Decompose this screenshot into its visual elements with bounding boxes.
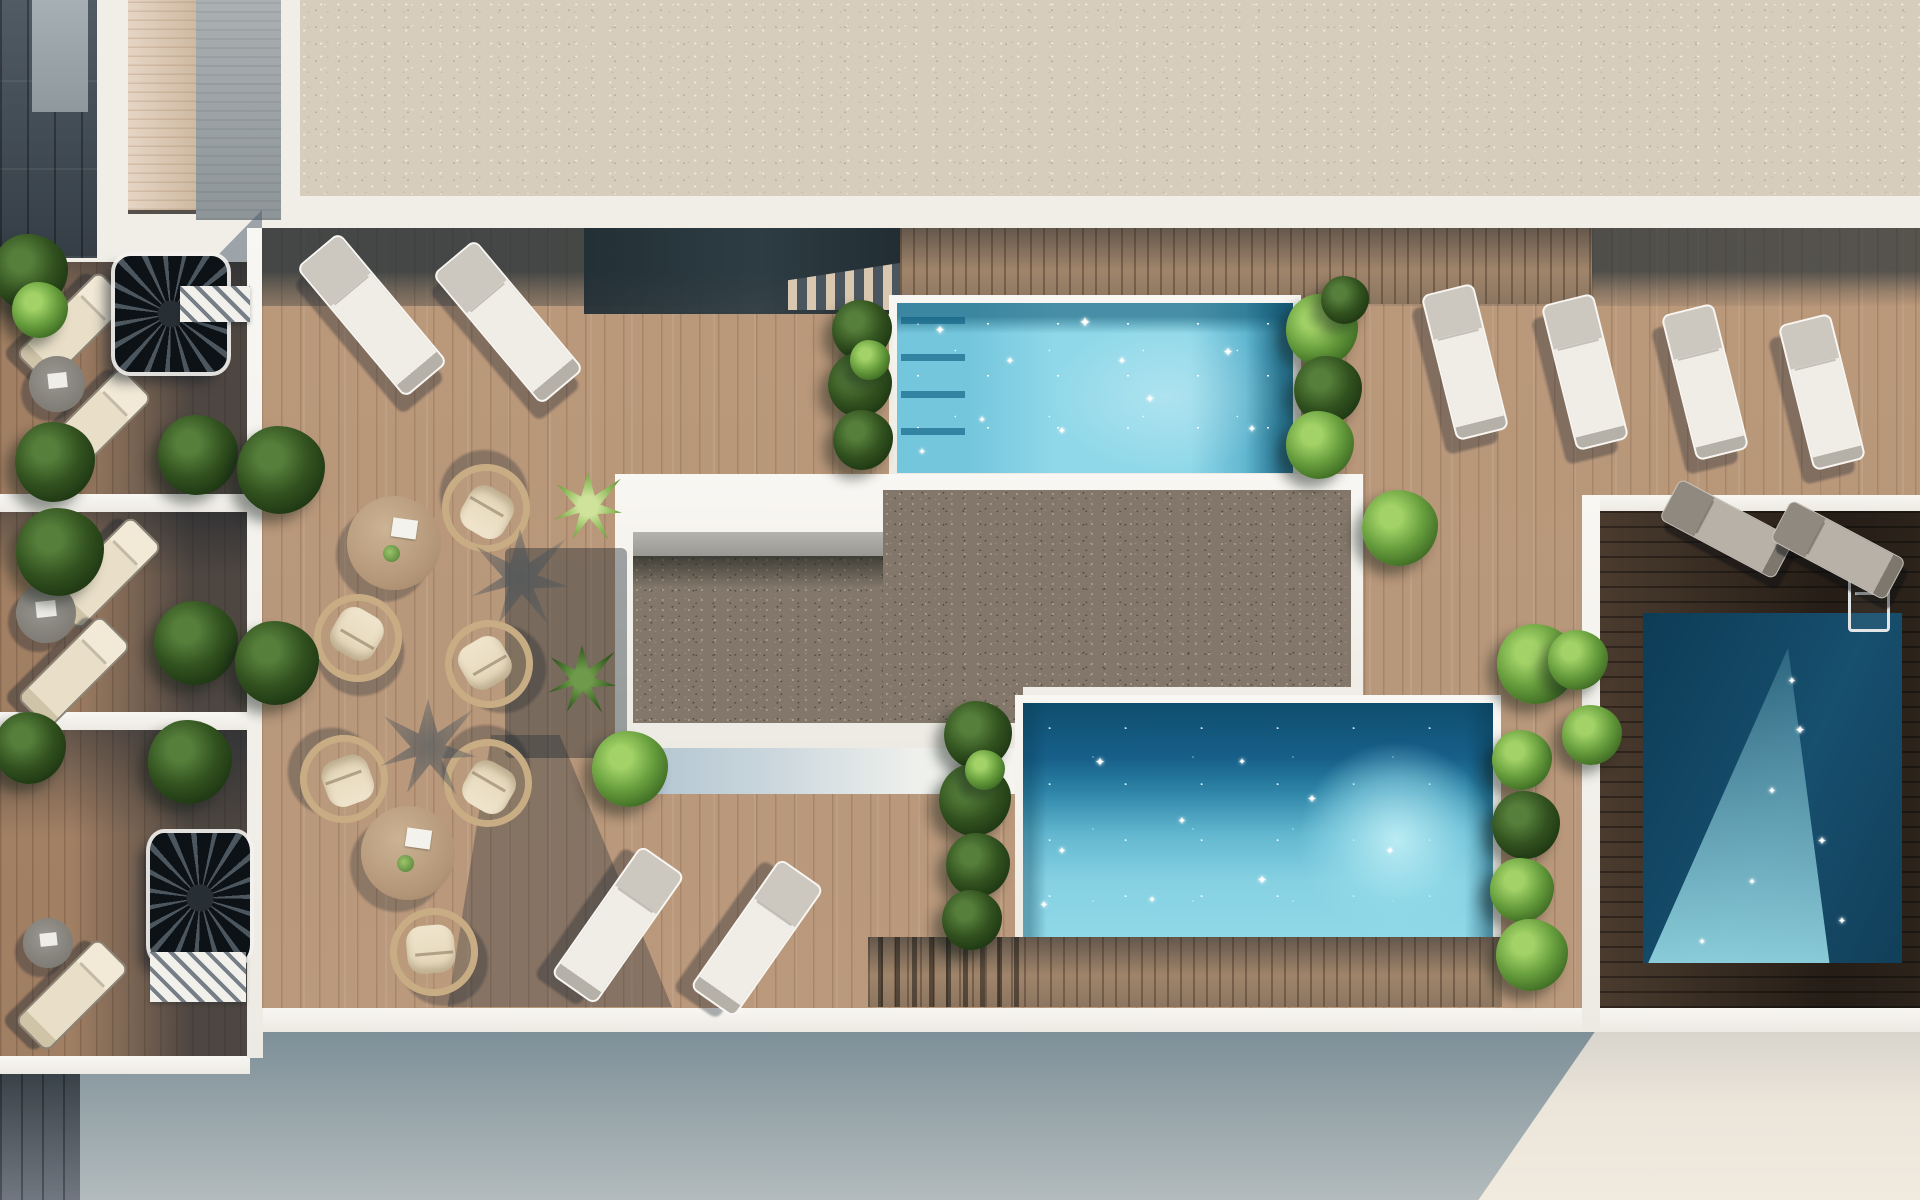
water-sparkle: ✦ — [1817, 837, 1826, 848]
water-sparkle: ✦ — [1698, 938, 1706, 947]
balcony-side-table — [29, 356, 85, 412]
rooftop-terrace-render: ✦✦✦✦✦✦✦✦✦✦✦✦✦✦✦✦✦✦✦✦✦✦✦✦✦✦ — [0, 0, 1920, 1200]
skylight-gravel-shadow — [633, 556, 883, 588]
pool1-water — [897, 303, 1293, 473]
water-sparkle: ✦ — [935, 324, 945, 336]
water-sparkle: ✦ — [1040, 901, 1048, 911]
water-sparkle: ✦ — [1058, 427, 1066, 437]
round-table — [361, 806, 455, 900]
spiral-staircase — [150, 833, 250, 963]
pool3-zone-north-wall — [1582, 495, 1920, 511]
round-table — [347, 496, 441, 590]
water-sparkle: ✦ — [1248, 425, 1256, 435]
water-sparkle: ✦ — [1257, 874, 1267, 886]
gravel-roof-band — [300, 0, 1920, 196]
water-sparkle: ✦ — [1079, 315, 1091, 329]
water-sparkle: ✦ — [1748, 878, 1756, 887]
pergola-slat-shadows — [878, 937, 1023, 1007]
water-sparkle: ✦ — [1118, 357, 1126, 367]
water-sparkle: ✦ — [1795, 724, 1805, 736]
skylight-gravel-mid — [883, 490, 1023, 723]
water-sparkle: ✦ — [1768, 787, 1776, 797]
south-parapet-wall — [250, 1006, 1920, 1032]
balcony-side-table — [23, 918, 73, 968]
water-sparkle: ✦ — [1148, 896, 1156, 905]
water-sparkle: ✦ — [1386, 847, 1394, 857]
water-sparkle: ✦ — [1223, 346, 1233, 358]
stair-slat-cover — [180, 286, 250, 322]
pool1-north-slat-deck — [900, 228, 1592, 304]
water-sparkle: ✦ — [1058, 847, 1066, 857]
water-sparkle: ✦ — [1006, 357, 1014, 367]
water-sparkle: ✦ — [1238, 758, 1246, 767]
skylight-concrete-step — [633, 532, 883, 558]
pool2-sun-patch — [1298, 742, 1495, 939]
water-sparkle: ✦ — [1095, 756, 1105, 768]
water-sparkle: ✦ — [918, 448, 926, 457]
water-sparkle: ✦ — [1838, 917, 1846, 927]
skylight-gravel-east — [1023, 490, 1351, 687]
lower-building-planks — [0, 1060, 80, 1200]
striped-floor-panel — [150, 952, 246, 1002]
upper-balcony-panel — [32, 0, 88, 112]
water-sparkle: ✦ — [978, 416, 986, 425]
upper-balcony-gray-strip — [196, 0, 281, 220]
upper-balcony-wood — [128, 0, 196, 214]
balcony-c-bottom-wall — [0, 1056, 250, 1074]
water-sparkle: ✦ — [1178, 817, 1186, 827]
water-sparkle: ✦ — [1145, 395, 1154, 406]
water-sparkle: ✦ — [1307, 795, 1316, 806]
water-sparkle: ✦ — [1788, 677, 1796, 687]
